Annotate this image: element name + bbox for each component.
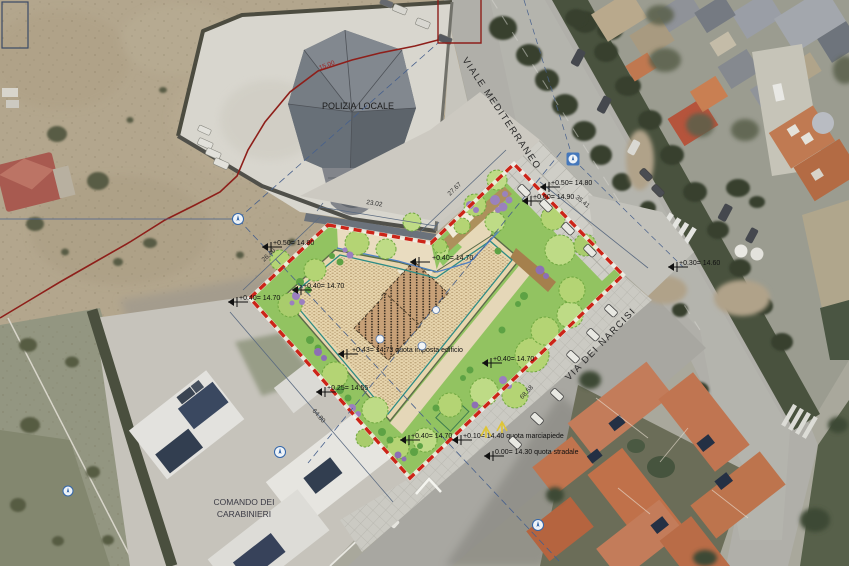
svg-text:+0.40= 14.70: +0.40= 14.70: [239, 295, 280, 302]
svg-text:POLIZIA LOCALE: POLIZIA LOCALE: [322, 101, 394, 111]
svg-text:+0.30= 14.60: +0.30= 14.60: [679, 260, 720, 267]
svg-text:+0.50= 14.80: +0.50= 14.80: [551, 180, 592, 187]
svg-text:COMANDO DEI: COMANDO DEI: [214, 497, 275, 507]
svg-text:+0.25= 14.55: +0.25= 14.55: [327, 385, 368, 392]
svg-text:+0.50= 14.80: +0.50= 14.80: [273, 240, 314, 247]
svg-text:+0.40= 14.70: +0.40= 14.70: [411, 433, 452, 440]
svg-text:+0.60= 14.90: +0.60= 14.90: [533, 194, 574, 201]
svg-text:+0.43= 14.73 quota imposta edi: +0.43= 14.73 quota imposta edificio: [352, 347, 463, 354]
svg-text:+0.40= 14.70: +0.40= 14.70: [303, 283, 344, 290]
svg-text:0.00= 14.30 quota stradale: 0.00= 14.30 quota stradale: [495, 449, 579, 456]
svg-text:+0.40= 14.70: +0.40= 14.70: [432, 255, 473, 262]
svg-text:CARABINIERI: CARABINIERI: [217, 509, 271, 519]
svg-text:+0.40= 14.70: +0.40= 14.70: [493, 356, 534, 363]
